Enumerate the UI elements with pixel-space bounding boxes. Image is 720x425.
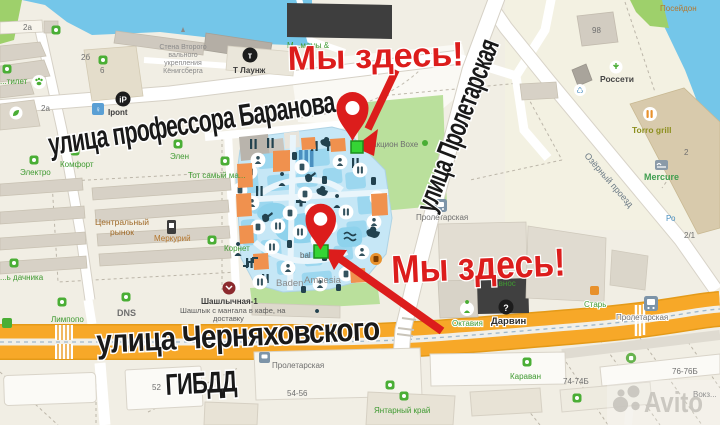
svg-text:74-74Б: 74-74Б — [563, 377, 589, 386]
svg-text:Лимпопо: Лимпопо — [51, 315, 84, 324]
svg-text:вального: вального — [168, 52, 197, 59]
svg-text:Т Лаунж: Т Лаунж — [233, 66, 266, 75]
svg-text:Элен: Элен — [170, 152, 189, 161]
svg-text:Комфорт: Комфорт — [60, 160, 94, 169]
svg-text:Mercure: Mercure — [644, 172, 679, 182]
svg-text:ГИБДД: ГИБДД — [165, 365, 238, 402]
svg-text:♀: ♀ — [95, 105, 101, 114]
svg-text:bal: bal — [300, 251, 311, 260]
svg-text:Пролетарская: Пролетарская — [416, 213, 468, 222]
svg-text:Ро: Ро — [666, 214, 676, 223]
svg-text:...тилет: ...тилет — [0, 77, 28, 86]
svg-text:Пролетарская: Пролетарская — [272, 361, 324, 370]
svg-text:Янтарный край: Янтарный край — [374, 406, 430, 415]
svg-text:DNS: DNS — [117, 308, 136, 318]
svg-text:52: 52 — [152, 383, 161, 392]
svg-text:♺: ♺ — [576, 86, 583, 95]
svg-text:Кёнигсберга: Кёнигсберга — [163, 67, 203, 75]
svg-text:Меркурий: Меркурий — [154, 234, 191, 243]
svg-text:2а: 2а — [23, 23, 32, 32]
svg-text:6: 6 — [100, 66, 105, 75]
svg-text:Россети: Россети — [600, 74, 634, 84]
svg-text:Avito: Avito — [644, 387, 703, 419]
svg-text:Корнет: Корнет — [224, 244, 250, 253]
svg-text:Дарвин: Дарвин — [491, 316, 527, 327]
svg-text:2: 2 — [684, 148, 689, 157]
svg-text:Baden: Baden — [276, 278, 303, 289]
svg-text:т: т — [248, 51, 253, 61]
svg-text:Torro grill: Torro grill — [632, 125, 672, 135]
svg-text:Мы здесь!: Мы здесь! — [287, 35, 464, 78]
svg-text:2а: 2а — [41, 104, 50, 113]
svg-text:Мы здесь!: Мы здесь! — [391, 241, 567, 292]
svg-text:Шашлычная-1: Шашлычная-1 — [201, 297, 258, 306]
svg-text:Стена Второго: Стена Второго — [159, 44, 206, 51]
svg-text:76-76Б: 76-76Б — [672, 367, 698, 376]
svg-text:2/1: 2/1 — [684, 231, 696, 240]
svg-text:Центральный: Центральный — [95, 217, 149, 227]
svg-text:iP: iP — [119, 96, 127, 105]
svg-text:Посейдон: Посейдон — [660, 4, 697, 13]
svg-text:рынок: рынок — [110, 227, 134, 237]
svg-text:?: ? — [503, 303, 509, 313]
svg-text:Электро: Электро — [20, 168, 51, 177]
svg-text:54-56: 54-56 — [287, 389, 308, 398]
svg-text:2б: 2б — [81, 53, 90, 62]
svg-text:Amnesia: Amnesia — [304, 275, 342, 286]
svg-text:Старь: Старь — [584, 300, 606, 309]
svg-text:...ь дачника: ...ь дачника — [0, 273, 44, 282]
svg-text:Караван: Караван — [510, 372, 541, 381]
svg-text:укрепления: укрепления — [164, 60, 202, 67]
svg-text:98: 98 — [592, 26, 601, 35]
svg-text:Пролетарская: Пролетарская — [616, 313, 668, 322]
svg-text:Тот самый ма...: Тот самый ма... — [188, 171, 245, 180]
svg-text:Октавия: Октавия — [452, 319, 483, 328]
